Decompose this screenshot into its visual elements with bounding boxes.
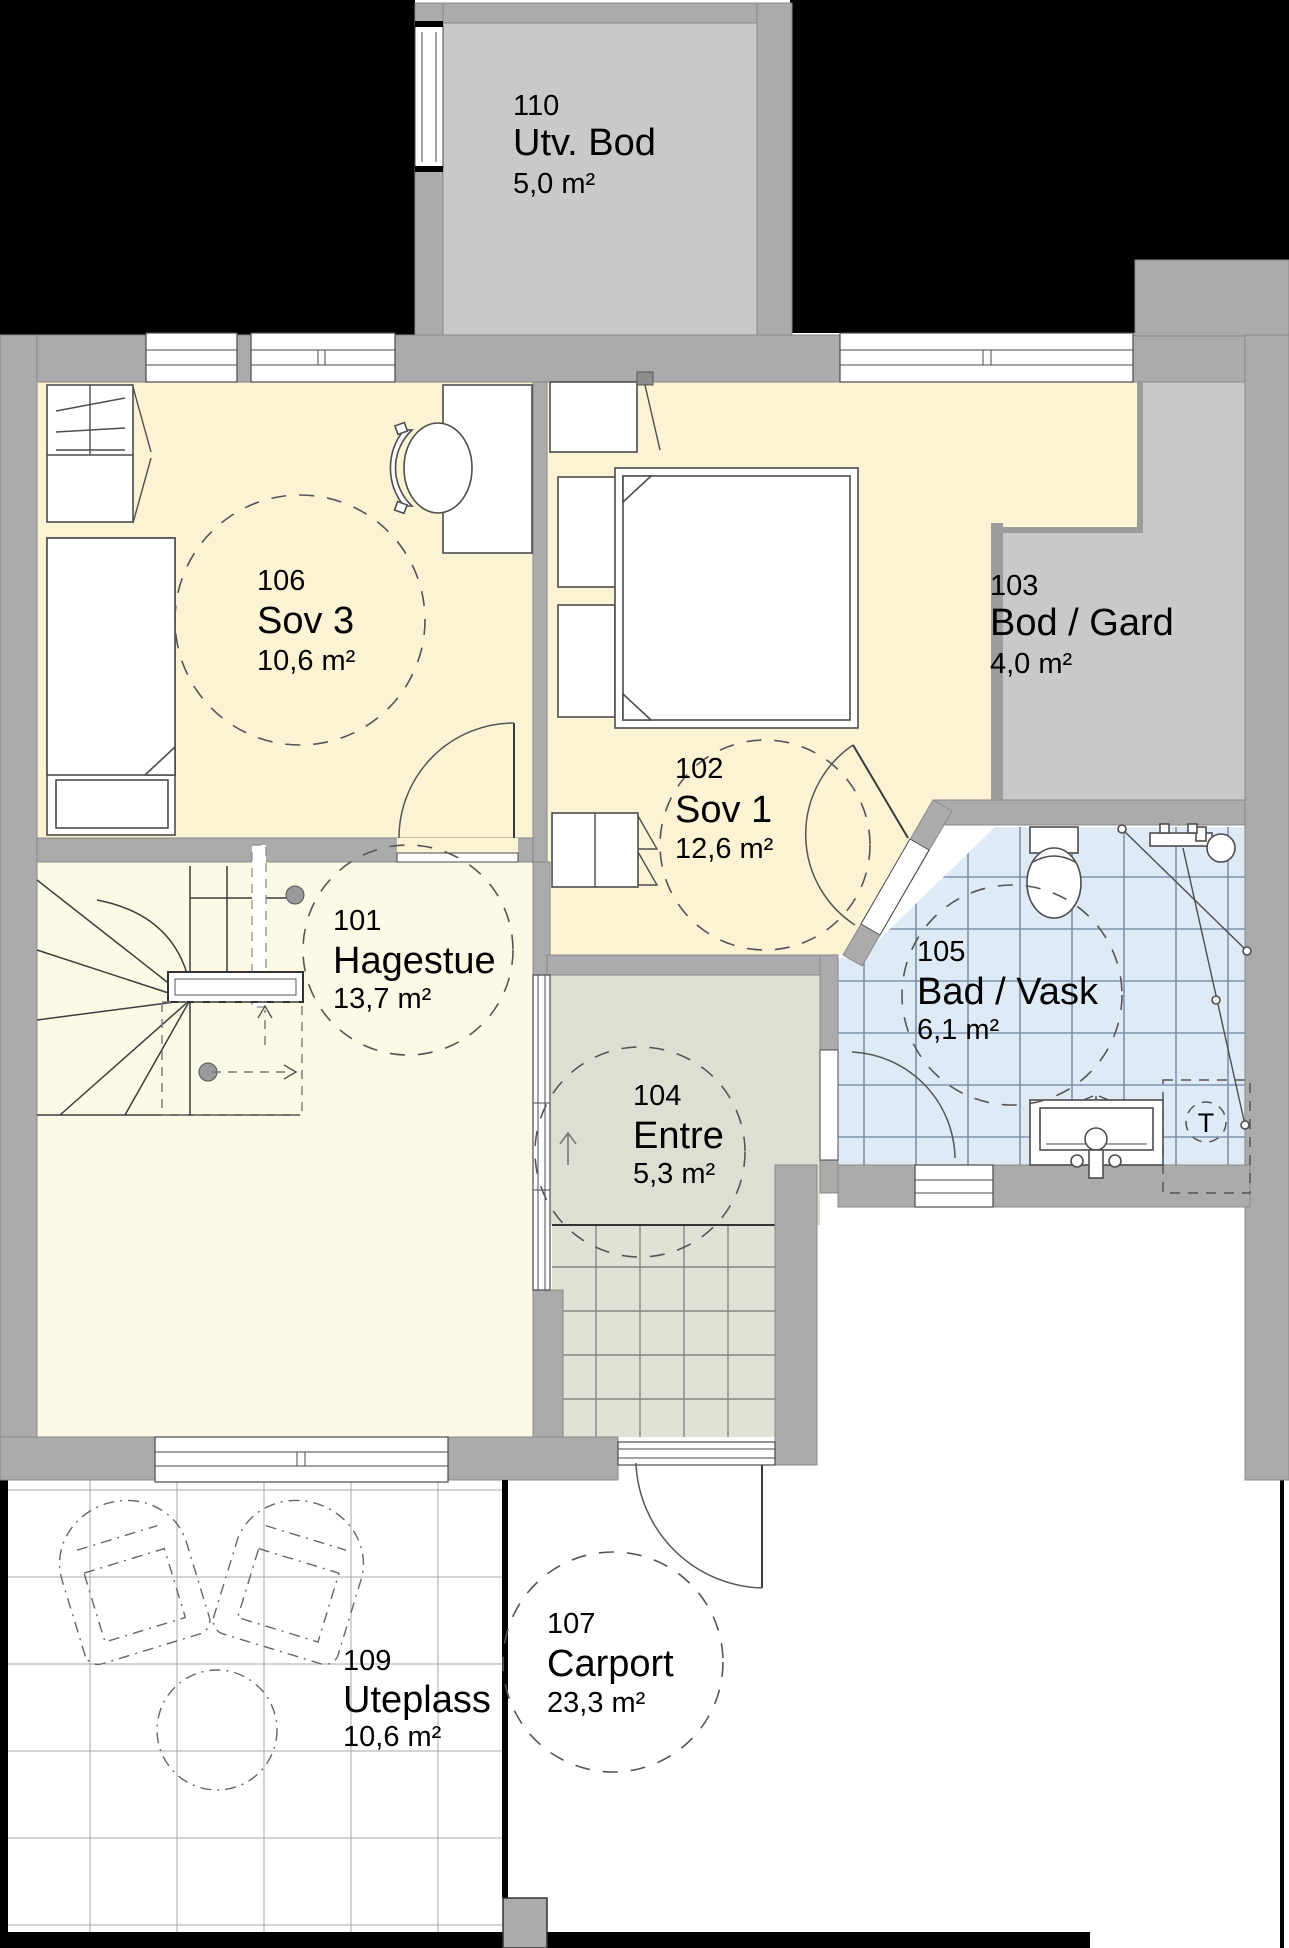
window-sov3-left — [146, 333, 237, 382]
room-number: 105 — [917, 936, 965, 968]
room-name: Uteplass — [343, 1679, 491, 1721]
room-area: 10,6 m² — [343, 1721, 442, 1753]
room-area: 10,6 m² — [257, 645, 356, 677]
stair-handrail — [168, 972, 303, 1002]
room-area: 13,7 m² — [333, 983, 432, 1015]
utv-bod-door — [415, 21, 443, 172]
nightstand — [558, 605, 615, 717]
window-hagestue-south — [155, 1437, 448, 1482]
room-name: Sov 1 — [675, 789, 772, 831]
room-number: 103 — [990, 570, 1038, 602]
room-area: 4,0 m² — [990, 648, 1073, 680]
room-number: 102 — [675, 753, 723, 785]
room-name: Sov 3 — [257, 600, 354, 642]
room-number: 106 — [257, 565, 305, 597]
room-area: 5,0 m² — [513, 168, 596, 200]
room-area: 6,1 m² — [917, 1014, 1000, 1046]
vanity-sink — [1030, 1096, 1163, 1178]
room-area: 23,3 m² — [547, 1687, 646, 1719]
room-name: Hagestue — [333, 940, 496, 982]
room-number: 104 — [633, 1080, 681, 1112]
floor-entrance-tiles — [552, 1225, 775, 1437]
bottom-edge-bar — [8, 1932, 1090, 1948]
interior-window-hagestue-entre — [533, 975, 550, 1290]
carport-post — [503, 1898, 547, 1948]
single-bed — [47, 538, 175, 835]
window-bath-south — [915, 1165, 993, 1207]
room-name: Bad / Vask — [917, 971, 1099, 1013]
window-sov1-top — [840, 333, 1133, 382]
room-name: Entre — [633, 1115, 724, 1157]
room-name: Utv. Bod — [513, 122, 656, 164]
room-area: 5,3 m² — [633, 1158, 716, 1190]
floor-plan-canvas: T 110 Utv. Bod — [0, 0, 1289, 1948]
room-number: 110 — [513, 90, 559, 122]
stair-post-dot — [286, 886, 304, 904]
floor-utv-bod — [443, 23, 757, 335]
floor-plan: T 110 Utv. Bod — [0, 0, 1289, 1948]
double-bed — [615, 468, 858, 728]
room-name: Carport — [547, 1643, 674, 1685]
room-number: 107 — [547, 1608, 595, 1640]
room-area: 12,6 m² — [675, 833, 774, 865]
appliance-label: T — [1198, 1108, 1215, 1138]
nightstand — [558, 477, 620, 587]
room-name: Bod / Gard — [990, 602, 1174, 644]
room-number: 109 — [343, 1645, 391, 1677]
window-sov3-right — [251, 333, 395, 382]
toilet — [1027, 827, 1081, 918]
room-number: 101 — [333, 905, 381, 937]
